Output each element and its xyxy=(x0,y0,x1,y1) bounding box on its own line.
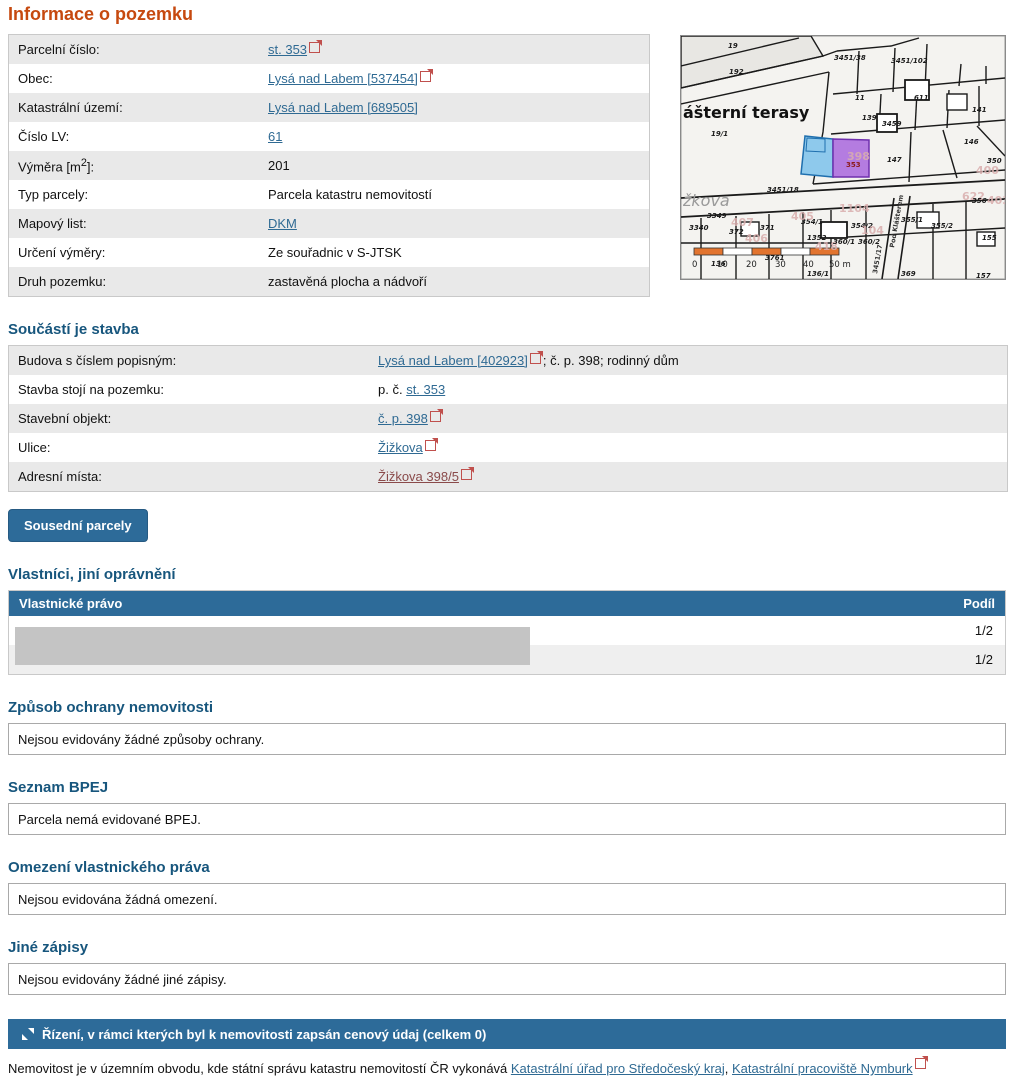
section-heading-owners: Vlastníci, jiní oprávnění xyxy=(8,566,1006,583)
map-label: 372 xyxy=(729,228,744,236)
value-link[interactable]: Lysá nad Labem [537454] xyxy=(268,71,418,86)
section-heading-omezeni: Omezení vlastnického práva xyxy=(8,859,1006,876)
section-heading-bpej: Seznam BPEJ xyxy=(8,779,1006,796)
map-label: 3451/18 xyxy=(767,186,799,194)
row-label: Výměra [m2]: xyxy=(9,157,268,174)
table-row: Obec:Lysá nad Labem [537454] xyxy=(9,64,649,93)
map-label: 360/1 xyxy=(833,238,855,246)
footer-note: Nemovitost je v územním obvodu, kde stát… xyxy=(8,1058,1006,1076)
map-label: ášterní terasy xyxy=(683,103,810,122)
table-row: Stavební objekt:č. p. 398 xyxy=(9,404,1007,433)
table-row: Adresní místa:Žižkova 398/5 xyxy=(9,462,1007,491)
row-value: Parcela katastru nemovitostí xyxy=(268,187,432,202)
row-label: Číslo LV: xyxy=(9,129,268,144)
neighbor-parcel-blue[interactable] xyxy=(801,136,833,177)
value-suffix: ; č. p. 398; rodinný dům xyxy=(543,353,679,368)
page: Informace o pozemku Parcelní číslo:st. 3… xyxy=(0,4,1014,1076)
external-link-icon xyxy=(461,469,472,480)
value-link[interactable]: Lysá nad Labem [689505] xyxy=(268,100,418,115)
value-link[interactable]: st. 353 xyxy=(268,42,307,57)
map-label: 400 xyxy=(976,164,999,177)
row-value: st. 353 xyxy=(268,42,322,57)
owners-col-share: Podíl xyxy=(963,596,995,611)
table-row: Stavba stojí na pozemku:p. č. st. 353 xyxy=(9,375,1007,404)
value-text: Parcela katastru nemovitostí xyxy=(268,187,432,202)
map-label: 355/2 xyxy=(931,222,953,230)
rizeni-accordion-bar[interactable]: Řízení, v rámci kterých byl k nemovitost… xyxy=(8,1019,1006,1049)
value-text: Ze souřadnic v S-JTSK xyxy=(268,245,402,260)
table-row: Ulice:Žižkova xyxy=(9,433,1007,462)
map-label: 0 xyxy=(692,260,697,270)
map-label: 19 xyxy=(728,42,738,50)
owners-col-right: Vlastnické právo xyxy=(19,596,122,611)
external-link-icon xyxy=(309,42,320,53)
row-label: Mapový list: xyxy=(9,216,268,231)
value-text: 201 xyxy=(268,158,290,173)
page-title: Informace o pozemku xyxy=(8,4,1006,25)
row-value: Lysá nad Labem [537454] xyxy=(268,71,433,86)
row-value: Lysá nad Labem [689505] xyxy=(268,100,418,115)
building-info-table: Budova s číslem popisným:Lysá nad Labem … xyxy=(8,345,1008,492)
owners-table: Vlastnické právo Podíl 1/21/2 xyxy=(8,590,1006,675)
row-label: Ulice: xyxy=(9,440,378,455)
map-label: 3349 xyxy=(707,212,727,220)
map-label: 139 xyxy=(862,114,877,122)
map-label: 3340 xyxy=(689,224,709,232)
row-label: Stavba stojí na pozemku: xyxy=(9,382,378,397)
map-label: 11 xyxy=(855,94,865,102)
row-label: Typ parcely: xyxy=(9,187,268,202)
table-row: Parcelní číslo:st. 353 xyxy=(9,35,649,64)
map-label: 1104 xyxy=(839,202,870,215)
external-link-icon xyxy=(430,411,441,422)
external-link-icon xyxy=(530,353,541,364)
table-row: Budova s číslem popisným:Lysá nad Labem … xyxy=(9,346,1007,375)
footer-text-sep: , xyxy=(725,1061,732,1076)
map-label: 3459 xyxy=(882,120,902,128)
map-label: 369 xyxy=(901,270,916,278)
map-label: 19/1 xyxy=(711,130,728,138)
row-value: 201 xyxy=(268,158,290,173)
map-label: 406 xyxy=(745,232,768,245)
map-label: 147 xyxy=(887,156,902,164)
footer-link-urad[interactable]: Katastrální úřad pro Středočeský kraj xyxy=(511,1061,725,1076)
row-value: Ze souřadnic v S-JTSK xyxy=(268,245,402,260)
owners-table-header: Vlastnické právo Podíl xyxy=(9,591,1005,616)
row-value: Lysá nad Labem [402923]; č. p. 398; rodi… xyxy=(378,353,679,368)
row-value: p. č. st. 353 xyxy=(378,382,445,397)
map-label: 50 m xyxy=(829,260,851,270)
row-label: Budova s číslem popisným: xyxy=(9,353,378,368)
row-value: č. p. 398 xyxy=(378,411,443,426)
value-link[interactable]: Lysá nad Labem [402923] xyxy=(378,353,528,368)
row-label: Druh pozemku: xyxy=(9,274,268,289)
value-link[interactable]: DKM xyxy=(268,216,297,231)
section-heading-ochrana: Způsob ochrany nemovitosti xyxy=(8,699,1006,716)
parcel-info-table: Parcelní číslo:st. 353Obec:Lysá nad Labe… xyxy=(8,34,650,297)
bpej-empty-note: Parcela nemá evidované BPEJ. xyxy=(8,803,1006,835)
map-label: 405 xyxy=(791,210,814,223)
cadastral-map[interactable]: ášterní terasyžkovaPod Klášterem1919219/… xyxy=(680,35,1006,280)
neighboring-parcels-button[interactable]: Sousední parcely xyxy=(8,509,148,542)
map-label: 403 xyxy=(987,194,1005,207)
table-row: Katastrální území:Lysá nad Labem [689505… xyxy=(9,93,649,122)
map-label: 146 xyxy=(964,138,979,146)
table-row: Typ parcely:Parcela katastru nemovitostí xyxy=(9,180,649,209)
cadastral-map-svg[interactable]: ášterní terasyžkovaPod Klášterem1919219/… xyxy=(681,36,1005,279)
owner-share: 1/2 xyxy=(975,623,993,638)
map-label: 3451/102 xyxy=(891,57,928,65)
external-link-icon xyxy=(425,440,436,451)
top-section: Parcelní číslo:st. 353Obec:Lysá nad Labe… xyxy=(8,34,1006,297)
table-row: Číslo LV:61 xyxy=(9,122,649,151)
row-label: Určení výměry: xyxy=(9,245,268,260)
map-label: 355/1 xyxy=(901,216,923,224)
map-label: 192 xyxy=(729,68,744,76)
row-value: Žižkova 398/5 xyxy=(378,469,474,484)
value-link[interactable]: st. 353 xyxy=(406,382,445,397)
value-link[interactable]: 61 xyxy=(268,129,282,144)
table-row: Mapový list:DKM xyxy=(9,209,649,238)
row-label: Katastrální území: xyxy=(9,100,268,115)
redacted-owner-names xyxy=(15,627,530,665)
section-heading-stavba: Součástí je stavba xyxy=(8,321,1006,338)
value-prefix: p. č. xyxy=(378,382,406,397)
expand-icon xyxy=(22,1028,34,1040)
map-label: 141 xyxy=(972,106,987,114)
row-value: DKM xyxy=(268,216,297,231)
map-label: 155 xyxy=(982,234,997,242)
row-label: Parcelní číslo: xyxy=(9,42,268,57)
row-label: Stavební objekt: xyxy=(9,411,378,426)
map-label: 353 xyxy=(846,161,861,169)
rizeni-bar-label: Řízení, v rámci kterých byl k nemovitost… xyxy=(42,1027,486,1042)
map-label: 136/1 xyxy=(807,270,829,278)
map-label: 356 xyxy=(972,197,987,205)
row-value: zastavěná plocha a nádvoří xyxy=(268,274,427,289)
row-value: Žižkova xyxy=(378,440,438,455)
external-link-icon xyxy=(420,71,431,82)
owner-share: 1/2 xyxy=(975,652,993,667)
ochrana-empty-note: Nejsou evidovány žádné způsoby ochrany. xyxy=(8,723,1006,755)
map-label: 20 xyxy=(746,260,757,270)
row-value: 61 xyxy=(268,129,282,144)
map-label: 104 xyxy=(861,224,884,237)
map-label: 30 xyxy=(775,260,786,270)
omezeni-empty-note: Nejsou evidována žádná omezení. xyxy=(8,883,1006,915)
table-row: Druh pozemku:zastavěná plocha a nádvoří xyxy=(9,267,649,296)
map-label: 157 xyxy=(976,272,991,279)
zapisy-empty-note: Nejsou evidovány žádné jiné zápisy. xyxy=(8,963,1006,995)
value-link[interactable]: č. p. 398 xyxy=(378,411,428,426)
footer-link-pracoviste[interactable]: Katastrální pracoviště Nymburk xyxy=(732,1061,913,1076)
map-label: 40 xyxy=(803,260,814,270)
row-label: Obec: xyxy=(9,71,268,86)
footer-text-pre: Nemovitost je v územním obvodu, kde stát… xyxy=(8,1061,511,1076)
map-label: 371 xyxy=(760,224,775,232)
map-label: 611 xyxy=(914,94,929,102)
value-link[interactable]: Žižkova 398/5 xyxy=(378,469,459,484)
map-label: žkova xyxy=(682,191,730,210)
external-link-icon xyxy=(915,1058,926,1069)
table-row: Výměra [m2]:201 xyxy=(9,151,649,180)
section-heading-zapisy: Jiné zápisy xyxy=(8,939,1006,956)
value-text: zastavěná plocha a nádvoří xyxy=(268,274,427,289)
row-label: Adresní místa: xyxy=(9,469,378,484)
map-label: 3451/38 xyxy=(834,54,866,62)
table-row: Určení výměry:Ze souřadnic v S-JTSK xyxy=(9,238,649,267)
map-label: 10 xyxy=(717,260,728,270)
value-link[interactable]: Žižkova xyxy=(378,440,423,455)
